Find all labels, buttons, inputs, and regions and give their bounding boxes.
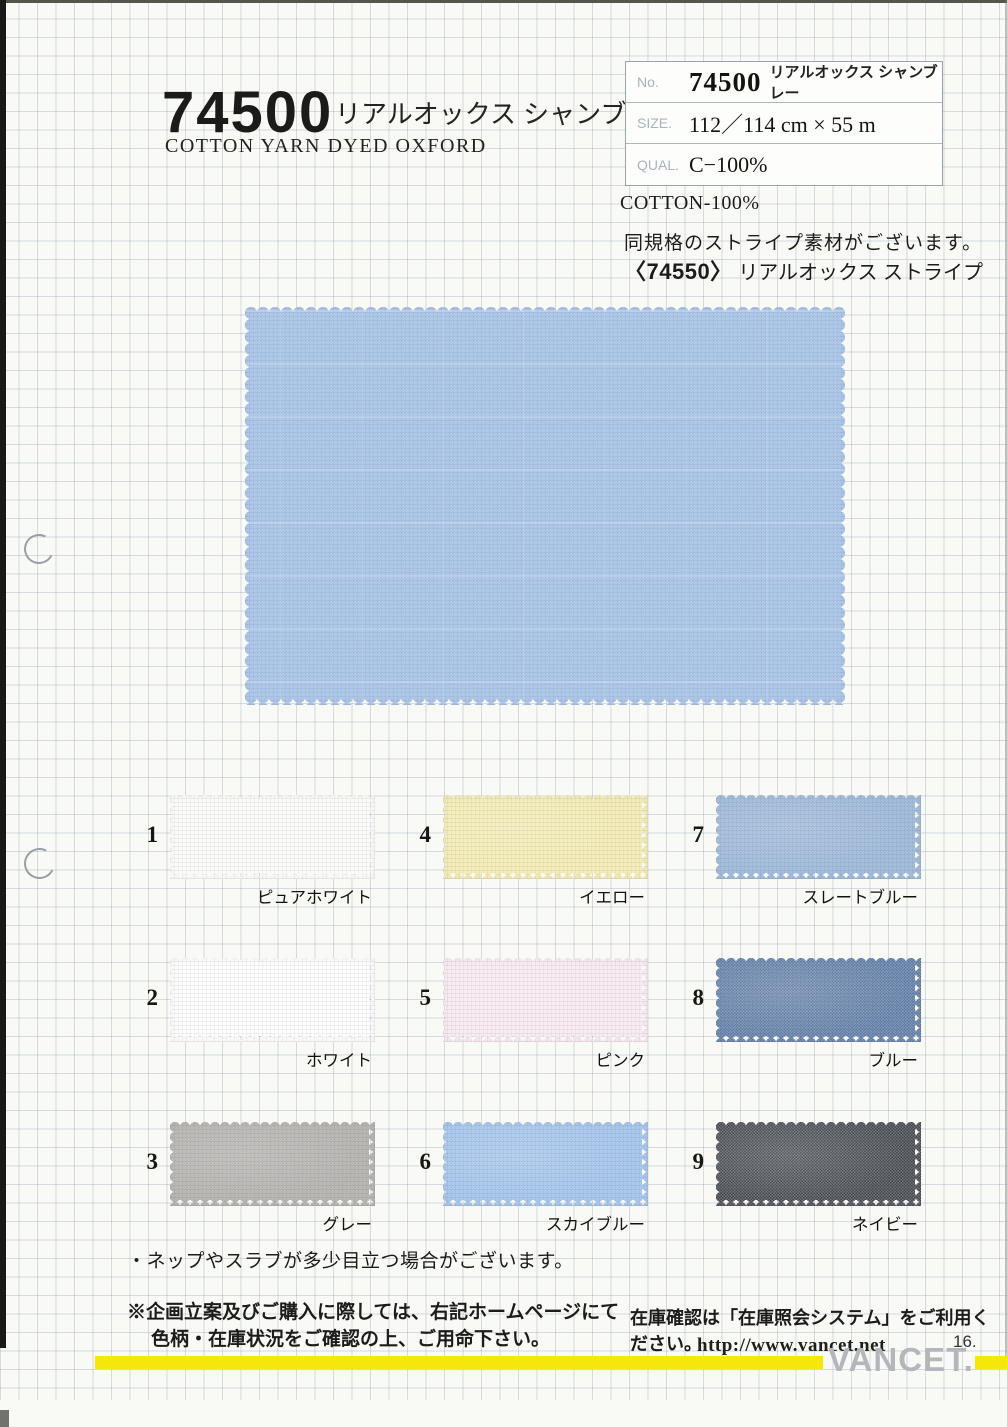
- binding-edge: [0, 0, 6, 1348]
- spec-value-no-sub: リアルオックス シャンブレー: [770, 61, 943, 103]
- swatch-label-pure-white: ピュアホワイト: [170, 884, 375, 908]
- swatch-number-6: 6: [399, 1149, 431, 1175]
- spec-value-no: 74500: [689, 67, 762, 98]
- spec-row-size: SIZE. 112／114 cm × 55 m: [626, 103, 942, 144]
- fabric-swatch-slate-blue: [716, 795, 921, 879]
- fabric-swatch-navy: [716, 1122, 921, 1206]
- fabric-swatch-gray: [170, 1122, 375, 1206]
- swatch-label-gray: グレー: [170, 1211, 375, 1235]
- spec-box: No. 74500 リアルオックス シャンブレー SIZE. 112／114 c…: [625, 61, 943, 186]
- swatch-label-white: ホワイト: [170, 1047, 375, 1071]
- stripe-reference: 〈74550〉 リアルオックス ストライプ: [624, 254, 983, 286]
- page-top-edge: [0, 0, 1007, 3]
- swatch-label-slate-blue: スレートブルー: [716, 884, 921, 908]
- vancet-logo: VANCET.: [828, 1341, 974, 1379]
- swatch-number-2: 2: [126, 985, 158, 1011]
- product-number-title: 74500: [162, 84, 333, 142]
- spec-value-size: 112／114 cm × 55 m: [689, 107, 876, 139]
- spec-label-no: No.: [626, 74, 689, 90]
- spec-label-qual: QUAL.: [626, 157, 689, 173]
- stripe-reference-number: 〈74550〉: [624, 259, 733, 284]
- swatch-number-1: 1: [126, 822, 158, 848]
- fabric-swatch-pink: [443, 958, 648, 1042]
- swatch-label-pink: ピンク: [443, 1047, 648, 1071]
- nep-slub-note: ・ネップやスラブが多少目立つ場合がございます。: [127, 1246, 574, 1273]
- purchase-note-line1: ※企画立案及びご購入に際しては、右記ホームページにて: [127, 1297, 619, 1324]
- product-name-en: COTTON YARN DYED OXFORD: [165, 135, 487, 158]
- spec-row-no: No. 74500 リアルオックス シャンブレー: [626, 62, 942, 103]
- swatch-label-sky-blue: スカイブルー: [443, 1211, 648, 1235]
- swatch-label-blue: ブルー: [716, 1047, 921, 1071]
- fabric-swatch-yellow: [443, 795, 648, 879]
- fabric-spec-sheet: 74500 リアルオックス シャンブレー COTTON YARN DYED OX…: [0, 0, 1007, 1427]
- stripe-availability-note: 同規格のストライプ素材がございます。: [624, 228, 982, 255]
- fabric-swatch-blue: [716, 958, 921, 1042]
- swatch-number-8: 8: [672, 985, 704, 1011]
- swatch-label-yellow: イエロー: [443, 884, 648, 908]
- fabric-swatch-sky-blue: [443, 1122, 648, 1206]
- stripe-reference-name: リアルオックス ストライプ: [738, 262, 983, 284]
- fabric-swatch-pure-white: [170, 795, 375, 879]
- yellow-footer-bar-right: [975, 1356, 1007, 1369]
- scan-artifact: [0, 1410, 9, 1427]
- composition-text: COTTON-100%: [620, 192, 760, 215]
- fabric-swatch-white: [170, 958, 375, 1042]
- purchase-note-line2: 色柄・在庫状況をご確認の上、ご用命下さい。: [151, 1324, 550, 1351]
- spec-row-qual: QUAL. C−100%: [626, 144, 942, 185]
- spec-value-qual: C−100%: [689, 152, 767, 178]
- main-fabric-swatch: [245, 307, 845, 705]
- swatch-number-5: 5: [399, 985, 431, 1011]
- swatch-label-navy: ネイビー: [716, 1211, 921, 1235]
- swatch-number-4: 4: [399, 822, 431, 848]
- swatch-number-7: 7: [672, 822, 704, 848]
- yellow-footer-bar: [95, 1356, 823, 1369]
- swatch-number-3: 3: [126, 1149, 158, 1175]
- swatch-number-9: 9: [672, 1149, 704, 1175]
- spec-label-size: SIZE.: [626, 115, 689, 131]
